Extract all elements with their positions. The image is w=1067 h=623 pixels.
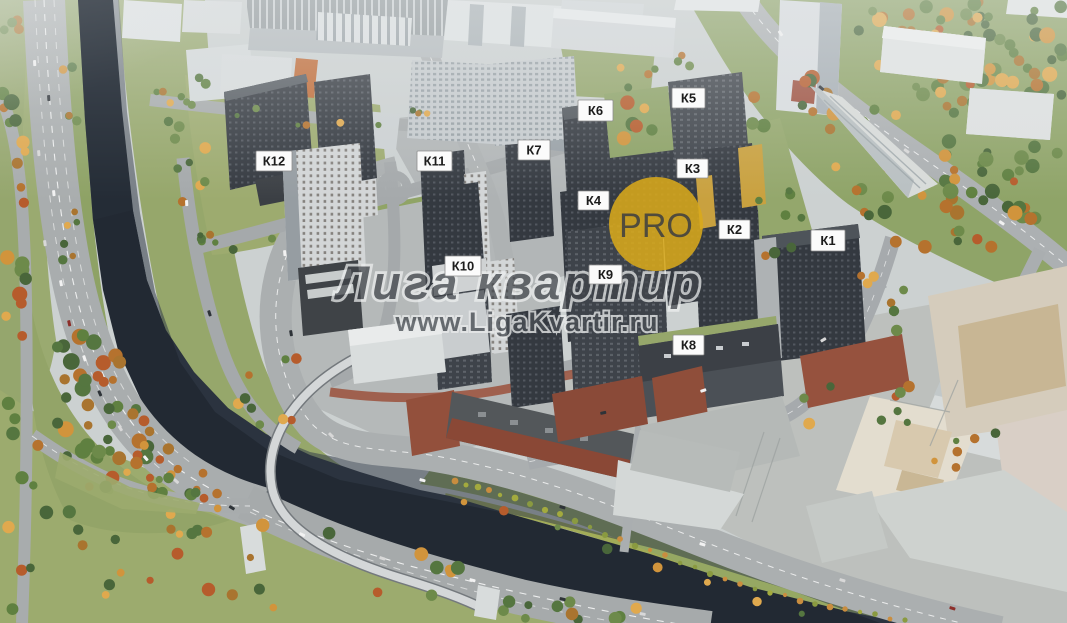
svg-text:К2: К2 bbox=[727, 222, 742, 237]
svg-text:К12: К12 bbox=[263, 154, 285, 169]
svg-text:К8: К8 bbox=[681, 338, 696, 353]
svg-text:www.LigaKvartir.ru: www.LigaKvartir.ru bbox=[394, 307, 658, 337]
svg-text:К5: К5 bbox=[681, 91, 696, 106]
svg-text:К10: К10 bbox=[452, 259, 474, 274]
svg-text:К4: К4 bbox=[586, 193, 602, 208]
svg-text:PRO: PRO bbox=[619, 207, 693, 245]
svg-text:К3: К3 bbox=[685, 161, 700, 176]
svg-text:К6: К6 bbox=[588, 103, 603, 118]
svg-text:К7: К7 bbox=[526, 143, 541, 158]
svg-text:К11: К11 bbox=[424, 154, 446, 169]
svg-text:К9: К9 bbox=[598, 267, 613, 282]
svg-text:К1: К1 bbox=[820, 233, 835, 248]
